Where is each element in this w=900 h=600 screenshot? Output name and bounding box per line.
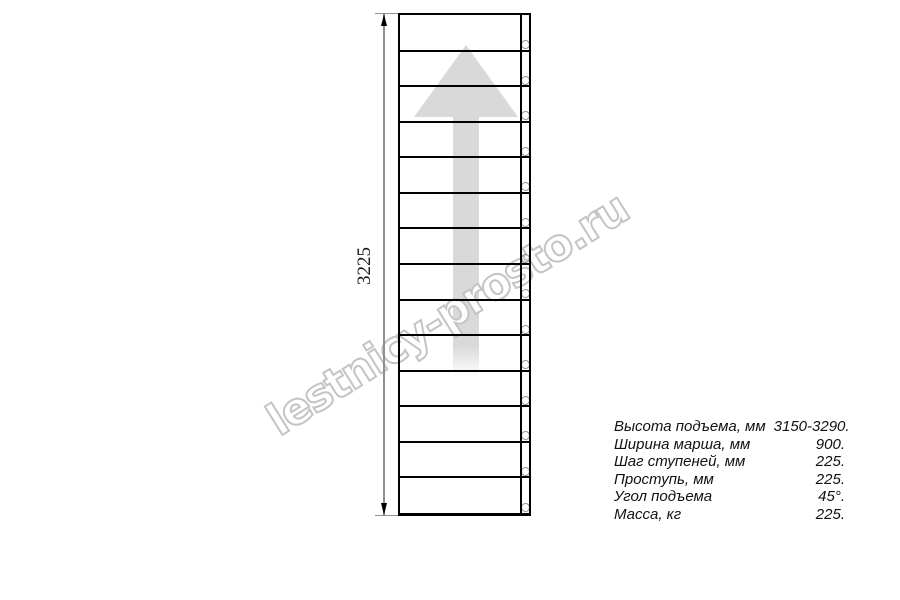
- step-line: [398, 227, 531, 229]
- dimension-label: 3225: [355, 236, 375, 296]
- spec-label: Шаг ступеней, мм: [614, 453, 745, 471]
- stairs-border-top: [398, 13, 531, 15]
- spec-label: Проступь, мм: [614, 471, 714, 489]
- step-line: [398, 334, 531, 336]
- dimension-arrowhead-down-icon: [381, 503, 387, 515]
- stair-drawing-canvas: 3225 lestnicy-prosto.ru Высота подъема, …: [0, 0, 900, 600]
- dimension-extension-line-bottom: [375, 515, 399, 517]
- step-line: [398, 299, 531, 301]
- stairs-border-left: [398, 13, 400, 516]
- step-line: [398, 405, 531, 407]
- step-line: [398, 50, 531, 52]
- spec-label: Ширина марша, мм: [614, 436, 750, 454]
- spec-row-step: Шаг ступеней, мм 225.: [614, 453, 845, 471]
- step-line: [398, 476, 531, 478]
- spec-row-mass: Масса, кг 225.: [614, 506, 845, 524]
- spec-label: Угол подъема: [614, 488, 712, 506]
- spec-value: 225.: [816, 506, 845, 524]
- step-line: [398, 156, 531, 158]
- step-line: [398, 121, 531, 123]
- step-line: [398, 192, 531, 194]
- spec-row-width: Ширина марша, мм 900.: [614, 436, 845, 454]
- stairs-stringer-line: [520, 13, 522, 516]
- specs-table: Высота подъема, мм 3150-3290. Ширина мар…: [614, 418, 845, 524]
- spec-value: 45°.: [818, 488, 845, 506]
- spec-value: 3150-3290.: [774, 418, 850, 436]
- stairs-border-bottom: [398, 513, 531, 516]
- stairs-border-right: [529, 13, 531, 516]
- spec-value: 225.: [816, 453, 845, 471]
- spec-label: Масса, кг: [614, 506, 681, 524]
- stair-flight-plan: [398, 13, 531, 516]
- direction-up-arrow-icon: [414, 45, 518, 117]
- spec-value: 900.: [816, 436, 845, 454]
- dimension-extension-line-top: [375, 13, 399, 15]
- step-line: [398, 85, 531, 87]
- dimension-arrowhead-up-icon: [381, 14, 387, 26]
- step-line: [398, 441, 531, 443]
- spec-value: 225.: [816, 471, 845, 489]
- spec-row-tread: Проступь, мм 225.: [614, 471, 845, 489]
- spec-row-height: Высота подъема, мм 3150-3290.: [614, 418, 845, 436]
- step-line: [398, 370, 531, 372]
- spec-row-angle: Угол подъема 45°.: [614, 488, 845, 506]
- spec-label: Высота подъема, мм: [614, 418, 766, 436]
- step-line: [398, 263, 531, 265]
- dimension-line: [383, 13, 385, 516]
